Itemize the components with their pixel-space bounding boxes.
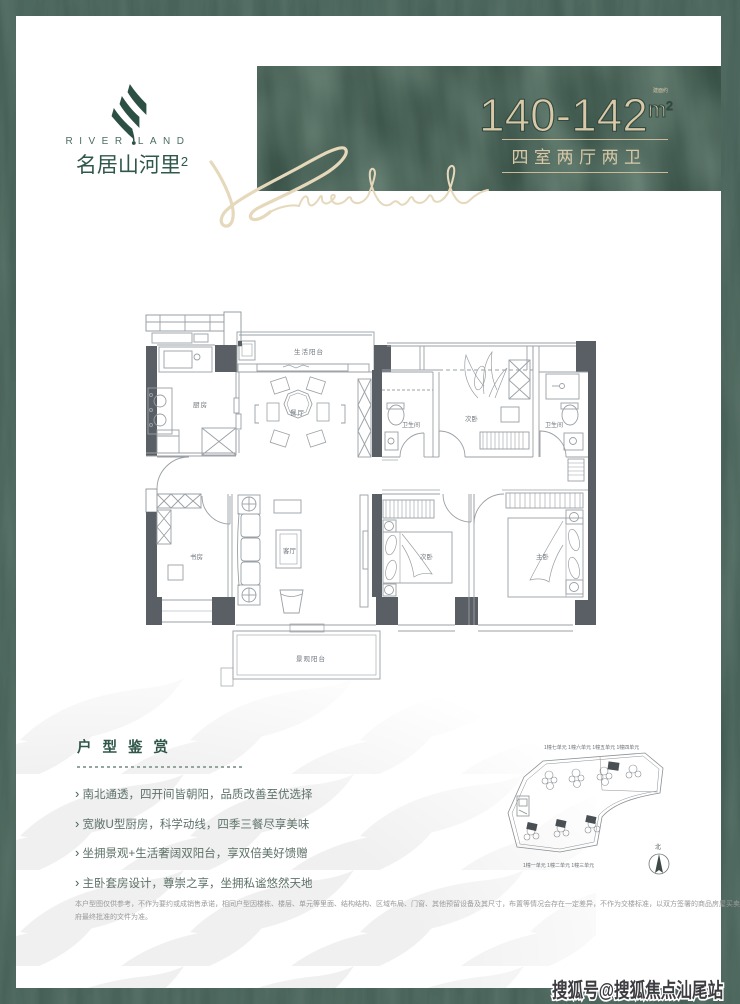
svg-text:卫生间: 卫生间	[545, 421, 563, 429]
svg-text:卫生间: 卫生间	[402, 421, 420, 429]
svg-text:书房: 书房	[190, 552, 203, 561]
svg-text:次卧: 次卧	[420, 552, 434, 561]
svg-text:生活阳台: 生活阳台	[294, 347, 324, 356]
svg-text:餐厅: 餐厅	[290, 408, 305, 417]
svg-text:景观阳台: 景观阳台	[296, 654, 326, 663]
svg-text:客厅: 客厅	[283, 546, 297, 555]
svg-text:1幢一单元 1幢二单元 1幢三单元: 1幢一单元 1幢二单元 1幢三单元	[523, 862, 594, 869]
svg-text:1幢七单元 1幢六单元 1幢五单元 1幢四单元: 1幢七单元 1幢六单元 1幢五单元 1幢四单元	[544, 744, 639, 751]
svg-text:厨房: 厨房	[193, 400, 208, 409]
svg-text:主卧: 主卧	[536, 552, 550, 561]
svg-text:次卧: 次卧	[465, 414, 479, 423]
svg-text:北: 北	[655, 843, 661, 851]
